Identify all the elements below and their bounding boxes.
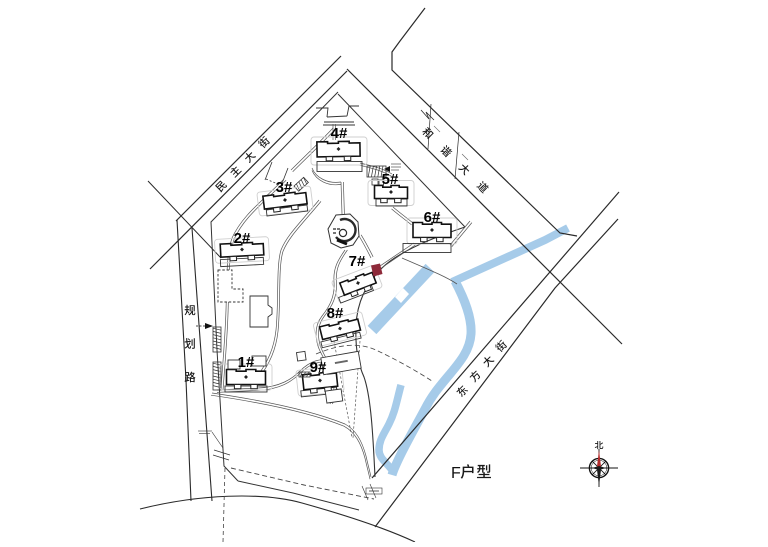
svg-text:1#: 1# [238, 354, 255, 371]
svg-text:F: F [451, 465, 461, 482]
svg-text:7#: 7# [349, 253, 366, 270]
svg-text:6#: 6# [424, 209, 441, 226]
svg-text:4#: 4# [331, 125, 348, 142]
svg-text:3#: 3# [276, 179, 293, 196]
svg-text:5#: 5# [382, 171, 399, 188]
svg-text:2#: 2# [234, 230, 251, 247]
svg-text:9#: 9# [310, 359, 327, 376]
svg-text:8#: 8# [327, 305, 344, 322]
